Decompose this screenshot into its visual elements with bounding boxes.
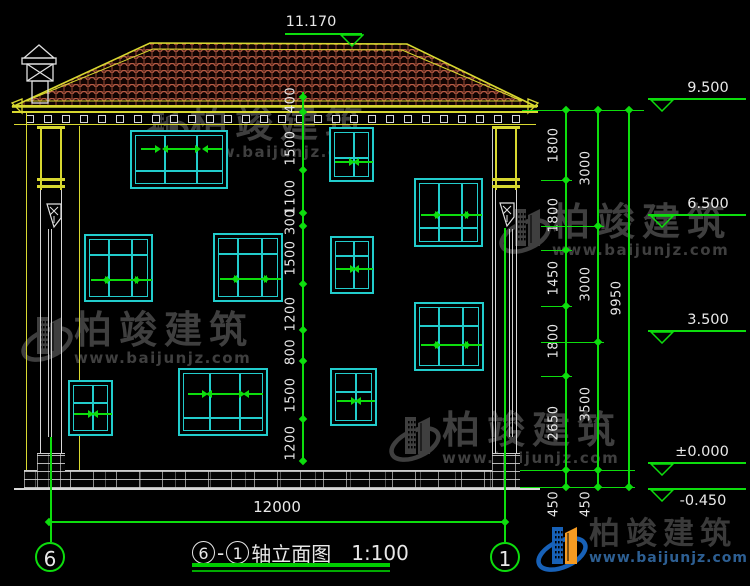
elevation-value: 3.500 bbox=[687, 312, 729, 328]
window-arrow-head bbox=[202, 145, 208, 153]
window-arrow-head bbox=[462, 211, 468, 219]
dim-tick bbox=[299, 280, 307, 288]
dentil bbox=[44, 115, 52, 123]
window-inner-frame bbox=[89, 239, 148, 297]
dim-label: 1200 bbox=[284, 296, 299, 331]
dim-tick bbox=[45, 518, 53, 526]
window-inner-frame bbox=[334, 132, 369, 177]
left-column-capital-band1 bbox=[37, 178, 65, 181]
window-arrow-line bbox=[248, 393, 263, 395]
dim-label: 1500 bbox=[284, 130, 299, 165]
right-column-capital-band1 bbox=[492, 178, 520, 181]
dentil bbox=[260, 115, 268, 123]
axis-line-6 bbox=[50, 437, 52, 542]
window-arrow-head bbox=[231, 275, 237, 283]
window-mullion bbox=[462, 308, 464, 365]
window-arrow-head bbox=[353, 158, 359, 166]
watermark-brand: 柏竣建筑 bbox=[74, 311, 254, 349]
dim-label: 1800 bbox=[547, 127, 562, 162]
dim-extension-line bbox=[541, 342, 604, 343]
left-column-capital-top-band bbox=[37, 126, 65, 129]
window-mullion bbox=[237, 239, 239, 296]
dentil bbox=[224, 115, 232, 123]
left-column-capital-band2 bbox=[37, 185, 65, 188]
dim-extension-line bbox=[541, 250, 572, 251]
right-dim-chain-line bbox=[565, 110, 567, 487]
elevation-value: -0.450 bbox=[680, 493, 727, 509]
right-dim-chain-line bbox=[597, 110, 599, 487]
window-divider bbox=[420, 325, 478, 327]
window-arrow-line bbox=[211, 393, 226, 395]
window-arrow-line bbox=[437, 344, 452, 346]
dentil bbox=[152, 115, 160, 123]
dentil bbox=[494, 115, 502, 123]
dim-label: 1500 bbox=[284, 377, 299, 412]
title-axis-separator: - bbox=[217, 541, 224, 565]
window bbox=[178, 368, 268, 436]
window-divider bbox=[184, 417, 262, 419]
dentil bbox=[458, 115, 466, 123]
window-mullion bbox=[92, 386, 94, 430]
window-arrow-line bbox=[360, 400, 375, 402]
window-arrow-line bbox=[74, 413, 89, 415]
overall-width-dim-line bbox=[49, 521, 505, 523]
window-arrow-head bbox=[92, 410, 98, 418]
window-inner-frame bbox=[419, 307, 479, 366]
window-arrow-line bbox=[358, 161, 373, 163]
window-mullion bbox=[261, 239, 263, 296]
right-column-pedestal bbox=[492, 453, 520, 489]
stone-base bbox=[24, 470, 517, 489]
window-divider bbox=[336, 391, 371, 393]
dim-label: 3500 bbox=[579, 386, 594, 421]
dim-tick bbox=[299, 209, 307, 217]
dentil bbox=[98, 115, 106, 123]
dentil bbox=[476, 115, 484, 123]
dim-extension-line bbox=[520, 470, 635, 471]
elevation-triangle-icon bbox=[650, 215, 674, 228]
window-arrow-head bbox=[261, 275, 267, 283]
dentil bbox=[368, 115, 376, 123]
dentil bbox=[26, 115, 34, 123]
window bbox=[68, 380, 113, 436]
ground-line bbox=[14, 488, 540, 490]
cornice-bottom-line bbox=[14, 124, 536, 125]
window-mullion bbox=[131, 240, 133, 296]
right-column-emblem bbox=[499, 202, 515, 228]
window-inner-frame bbox=[73, 385, 108, 431]
window bbox=[84, 234, 153, 302]
window-arrow-line bbox=[181, 148, 196, 150]
dim-tick bbox=[299, 166, 307, 174]
dentil bbox=[332, 115, 340, 123]
dentil bbox=[278, 115, 286, 123]
dim-label: 1800 bbox=[547, 323, 562, 358]
dim-extension-line bbox=[541, 376, 572, 377]
eave-fascia bbox=[12, 105, 538, 113]
elevation-drawing-canvas: 4001500110030015001200800150012001800180… bbox=[0, 0, 750, 586]
axis-line-1 bbox=[504, 228, 506, 542]
dentil bbox=[314, 115, 322, 123]
window-arrow-head bbox=[132, 276, 138, 284]
watermark-url: www.baijunjz.com bbox=[552, 243, 732, 258]
brand-logo-icon bbox=[535, 518, 589, 578]
window bbox=[330, 236, 374, 294]
brand-url: www.baijunjz.com bbox=[589, 551, 748, 565]
elevation-triangle-icon bbox=[340, 34, 364, 47]
title-axis-end-bubble: 1 bbox=[226, 541, 249, 564]
window-arrow-line bbox=[137, 279, 152, 281]
dim-label: 2650 bbox=[547, 405, 562, 440]
dim-label: 3000 bbox=[579, 266, 594, 301]
dentil bbox=[170, 115, 178, 123]
window-arrow-head bbox=[462, 341, 468, 349]
dim-label: 800 bbox=[284, 339, 299, 365]
window bbox=[130, 130, 228, 189]
window-arrow-line bbox=[437, 214, 452, 216]
window-arrow-line bbox=[266, 278, 281, 280]
dim-extension-line bbox=[541, 180, 572, 181]
dim-label: 450 bbox=[547, 491, 562, 517]
window-mullion bbox=[108, 240, 110, 296]
watermark-url: www.baijunjz.com bbox=[74, 351, 254, 366]
window bbox=[414, 178, 483, 247]
window-mullion bbox=[239, 374, 241, 430]
window-inner-frame bbox=[218, 238, 278, 297]
window-divider bbox=[90, 254, 147, 256]
dim-label: 1200 bbox=[284, 425, 299, 460]
dim-label: 400 bbox=[284, 87, 299, 113]
right-column-capital-band2 bbox=[492, 185, 520, 188]
window-arrow-head bbox=[353, 265, 359, 273]
overall-width-value: 12000 bbox=[253, 498, 301, 516]
window-arrow-line bbox=[141, 148, 156, 150]
elevation-triangle-icon bbox=[650, 489, 674, 502]
dentil bbox=[242, 115, 250, 123]
dim-extension-line bbox=[520, 487, 635, 488]
left-downspout bbox=[48, 229, 52, 437]
window-arrow-head bbox=[162, 145, 168, 153]
watermark-logo-icon bbox=[388, 408, 442, 468]
window-arrow-head bbox=[195, 145, 201, 153]
dim-label: 3000 bbox=[579, 150, 594, 185]
left-dim-chain-line bbox=[302, 92, 304, 461]
elevation-triangle-icon bbox=[650, 99, 674, 112]
elevation-value: 9.500 bbox=[687, 80, 729, 96]
window-arrow-head bbox=[355, 397, 361, 405]
window-inner-frame bbox=[135, 135, 223, 184]
axis-bubble-1: 1 bbox=[490, 542, 520, 572]
porch-edge-left bbox=[26, 113, 27, 487]
title-scale: 1:100 bbox=[351, 541, 409, 565]
dim-extension-line bbox=[541, 226, 604, 227]
title-underline-thick bbox=[192, 563, 390, 567]
watermark-url: www.baijunjz.com bbox=[442, 451, 622, 466]
window-divider bbox=[136, 170, 222, 172]
footer-brand-logo: 柏竣建筑 www.baijunjz.com bbox=[535, 518, 748, 578]
window-mullion bbox=[196, 136, 198, 183]
window-divider bbox=[74, 402, 107, 404]
window-divider bbox=[420, 227, 477, 229]
dentil bbox=[134, 115, 142, 123]
window-arrow-line bbox=[335, 161, 350, 163]
dim-label: 1500 bbox=[284, 240, 299, 275]
window-divider bbox=[336, 255, 368, 257]
dentil bbox=[116, 115, 124, 123]
right-column-shaft bbox=[495, 190, 517, 455]
window bbox=[414, 302, 484, 371]
brand-name: 柏竣建筑 bbox=[589, 518, 748, 551]
window-arrow-line bbox=[336, 268, 351, 270]
window-arrow-line bbox=[358, 268, 373, 270]
dim-tick bbox=[299, 222, 307, 230]
dentil bbox=[62, 115, 70, 123]
axis-bubble-6: 6 bbox=[35, 542, 65, 572]
window-arrow-head bbox=[206, 390, 212, 398]
watermark-brand: 柏竣建筑 bbox=[442, 411, 622, 449]
window-mullion bbox=[438, 308, 440, 365]
window-arrow-line bbox=[236, 278, 251, 280]
dentil bbox=[188, 115, 196, 123]
dentil bbox=[422, 115, 430, 123]
elevation-triangle-icon bbox=[650, 331, 674, 344]
right-downspout bbox=[509, 229, 513, 437]
window-arrow-line bbox=[467, 214, 482, 216]
left-column-emblem bbox=[46, 203, 62, 229]
window-arrow-line bbox=[467, 344, 482, 346]
window-mullion bbox=[164, 136, 166, 183]
elevation-value: ±0.000 bbox=[675, 444, 729, 460]
dentil bbox=[440, 115, 448, 123]
window-arrow-line bbox=[225, 393, 240, 395]
window-arrow-line bbox=[337, 400, 352, 402]
dentil bbox=[80, 115, 88, 123]
window-arrow-line bbox=[167, 148, 182, 150]
dentil bbox=[386, 115, 394, 123]
elevation-triangle-icon bbox=[650, 463, 674, 476]
dim-label: 450 bbox=[579, 491, 594, 517]
dim-extension-line bbox=[522, 110, 644, 111]
window-divider bbox=[219, 253, 277, 255]
window bbox=[330, 368, 377, 426]
dim-tick bbox=[299, 415, 307, 423]
dentil bbox=[404, 115, 412, 123]
window-arrow-line bbox=[107, 279, 122, 281]
right-dim-chain-line bbox=[628, 110, 630, 487]
elevation-value: 6.500 bbox=[687, 196, 729, 212]
dim-label: 300 bbox=[284, 209, 299, 235]
window-mullion bbox=[353, 133, 355, 176]
window bbox=[213, 233, 283, 302]
window-arrow-line bbox=[207, 148, 222, 150]
ridge-elevation-value: 11.170 bbox=[286, 14, 337, 30]
dim-tick bbox=[299, 357, 307, 365]
window-mullion bbox=[209, 374, 211, 430]
dentil bbox=[512, 115, 520, 123]
window-arrow-head bbox=[155, 145, 161, 153]
dim-tick bbox=[299, 326, 307, 334]
dentil bbox=[206, 115, 214, 123]
dim-tick bbox=[299, 457, 307, 465]
window-arrow-head bbox=[432, 211, 438, 219]
window-inner-frame bbox=[183, 373, 263, 431]
dim-extension-line bbox=[541, 306, 572, 307]
window-arrow-head bbox=[243, 390, 249, 398]
window-arrow-head bbox=[102, 276, 108, 284]
right-column-capital-top-band bbox=[492, 126, 520, 129]
title-axis-start-bubble: 6 bbox=[192, 541, 215, 564]
title-underline-thin bbox=[192, 570, 390, 572]
dim-label: 1450 bbox=[547, 260, 562, 295]
dentil bbox=[350, 115, 358, 123]
dim-label: 9950 bbox=[610, 280, 625, 315]
window bbox=[329, 127, 374, 182]
window-arrow-head bbox=[432, 341, 438, 349]
window-arrow-line bbox=[97, 413, 112, 415]
window-arrow-line bbox=[188, 393, 203, 395]
dim-label: 1800 bbox=[547, 197, 562, 232]
